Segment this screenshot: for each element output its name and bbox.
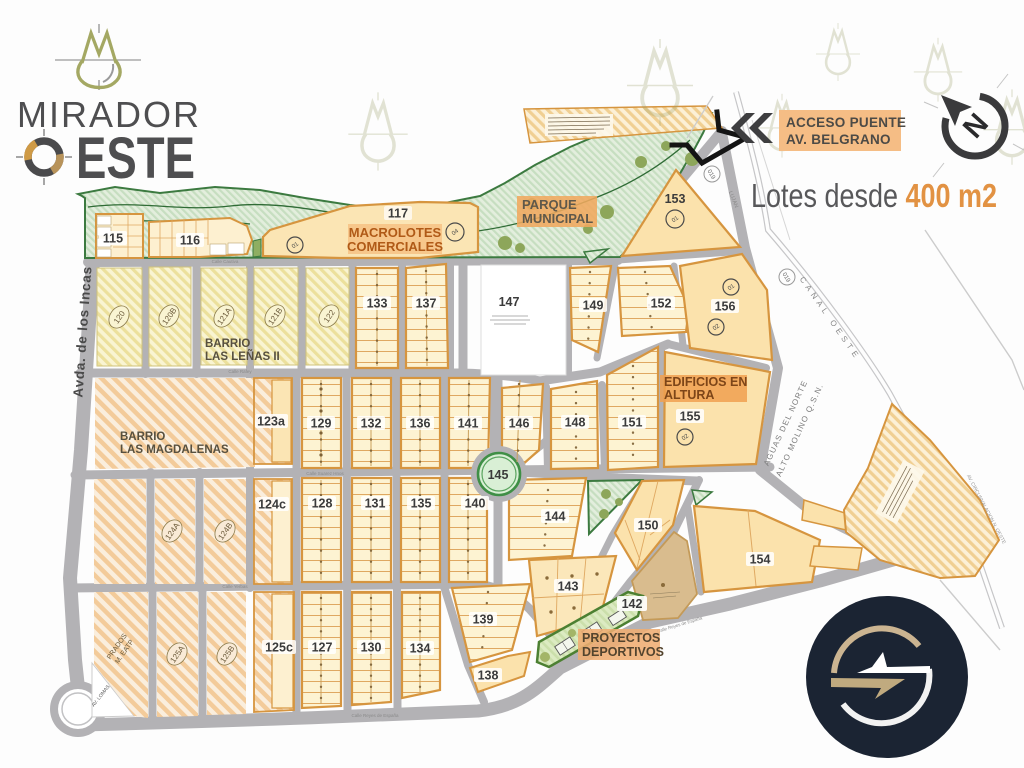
svg-text:BARRIO: BARRIO — [120, 431, 165, 443]
svg-text:144: 144 — [545, 510, 566, 524]
svg-text:Calle Reyes de España: Calle Reyes de España — [351, 713, 399, 718]
svg-text:140: 140 — [465, 497, 486, 511]
svg-text:128: 128 — [312, 497, 333, 511]
svg-text:116: 116 — [180, 234, 200, 248]
svg-text:152: 152 — [651, 297, 672, 311]
svg-text:123a: 123a — [257, 415, 286, 429]
svg-text:142: 142 — [622, 597, 643, 611]
svg-text:Lotes desde 400 m2: Lotes desde 400 m2 — [751, 177, 997, 214]
svg-text:132: 132 — [361, 417, 382, 431]
svg-text:ESTE: ESTE — [76, 126, 195, 191]
svg-text:MACROLOTES: MACROLOTES — [349, 225, 442, 240]
svg-text:117: 117 — [388, 207, 408, 221]
svg-text:150: 150 — [638, 519, 659, 533]
svg-text:141: 141 — [458, 417, 479, 431]
svg-text:134: 134 — [410, 642, 431, 656]
svg-text:AV. BELGRANO: AV. BELGRANO — [786, 132, 891, 147]
svg-text:154: 154 — [750, 553, 771, 567]
svg-text:LAS MAGDALENAS: LAS MAGDALENAS — [120, 444, 229, 456]
svg-text:Calle Suarez Hnos: Calle Suarez Hnos — [306, 471, 344, 476]
svg-text:Calle Yerbas: Calle Yerbas — [222, 584, 248, 589]
svg-text:135: 135 — [411, 497, 432, 511]
svg-text:146: 146 — [509, 417, 530, 431]
svg-text:Calle Rafey: Calle Rafey — [228, 369, 252, 374]
svg-text:139: 139 — [473, 613, 494, 627]
svg-text:LAS LEÑAS II: LAS LEÑAS II — [205, 350, 280, 363]
svg-text:149: 149 — [583, 299, 604, 313]
svg-text:148: 148 — [565, 416, 586, 430]
svg-text:COMERCIALES: COMERCIALES — [347, 239, 443, 254]
svg-text:EDIFICIOS EN: EDIFICIOS EN — [664, 375, 747, 389]
svg-text:145: 145 — [488, 468, 509, 482]
svg-text:ALTURA: ALTURA — [664, 388, 714, 402]
svg-text:143: 143 — [558, 580, 579, 594]
svg-text:129: 129 — [311, 417, 332, 431]
svg-text:153: 153 — [665, 192, 686, 206]
svg-text:130: 130 — [361, 641, 382, 655]
svg-text:ACCESO PUENTE: ACCESO PUENTE — [786, 115, 906, 130]
svg-text:PROYECTOS: PROYECTOS — [582, 631, 660, 645]
svg-text:BARRIO: BARRIO — [205, 338, 250, 350]
svg-text:147: 147 — [499, 295, 520, 309]
svg-text:MUNICIPAL: MUNICIPAL — [522, 211, 593, 226]
svg-text:156: 156 — [715, 300, 736, 314]
svg-text:DEPORTIVOS: DEPORTIVOS — [582, 645, 664, 659]
svg-text:155: 155 — [680, 410, 701, 424]
svg-text:115: 115 — [103, 232, 123, 246]
svg-text:136: 136 — [410, 417, 431, 431]
svg-text:124c: 124c — [258, 498, 286, 512]
svg-text:137: 137 — [416, 297, 437, 311]
svg-text:125c: 125c — [265, 641, 293, 655]
svg-text:131: 131 — [365, 497, 386, 511]
svg-text:133: 133 — [367, 297, 388, 311]
svg-text:PARQUE: PARQUE — [522, 197, 577, 212]
svg-text:151: 151 — [622, 416, 643, 430]
svg-text:127: 127 — [312, 641, 333, 655]
svg-text:Calle Cautiva: Calle Cautiva — [212, 259, 239, 264]
svg-text:138: 138 — [478, 669, 499, 683]
